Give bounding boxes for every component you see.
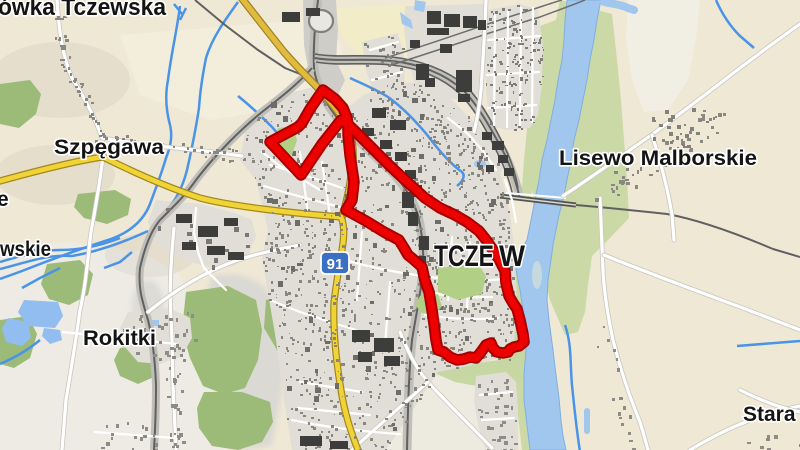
svg-text:ówka Tczewska: ówka Tczewska: [0, 0, 167, 21]
svg-text:e: e: [0, 188, 9, 211]
svg-text:Stara: Stara: [743, 403, 796, 426]
svg-text:TCZE: TCZE: [434, 240, 494, 273]
svg-text:Lisewo Malborskie: Lisewo Malborskie: [559, 147, 757, 170]
svg-text:W: W: [499, 240, 526, 273]
svg-text:wskie: wskie: [0, 238, 51, 261]
svg-text:91: 91: [327, 256, 344, 273]
svg-text:Szpęgawa: Szpęgawa: [54, 136, 164, 159]
svg-text:Rokitki: Rokitki: [83, 327, 156, 350]
